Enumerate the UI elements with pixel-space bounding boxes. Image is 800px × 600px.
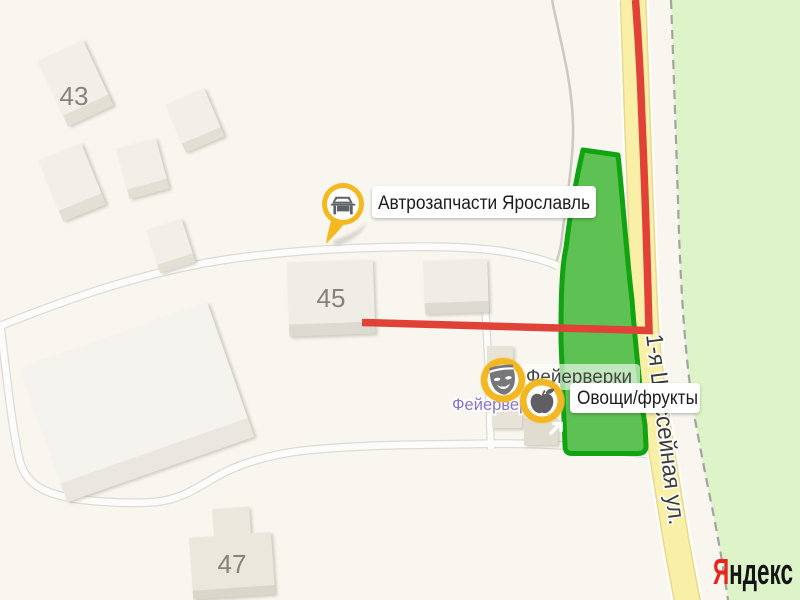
svg-text:Автрозапчасти Ярославль: Автрозапчасти Ярославль [378, 193, 590, 214]
svg-text:Яндекс: Яндекс [713, 553, 793, 593]
svg-text:43: 43 [60, 81, 89, 111]
svg-text:Овощи/фрукты: Овощи/фрукты [577, 388, 698, 409]
svg-text:47: 47 [218, 549, 247, 579]
svg-text:45: 45 [317, 283, 346, 313]
